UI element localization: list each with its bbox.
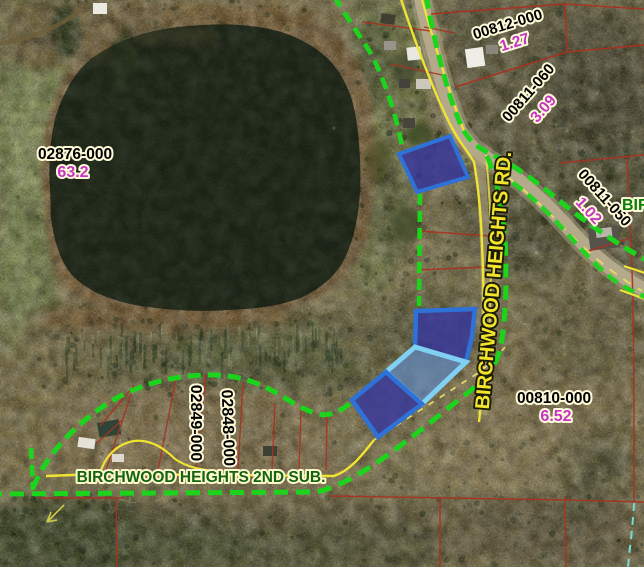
svg-text:02876-000: 02876-000 xyxy=(38,146,112,163)
svg-text:63.2: 63.2 xyxy=(57,164,88,181)
svg-text:00810-000: 00810-000 xyxy=(517,390,591,407)
svg-text:02849-000: 02849-000 xyxy=(187,385,204,462)
svg-text:BIRC: BIRC xyxy=(622,197,644,214)
svg-text:02848-000: 02848-000 xyxy=(218,389,238,466)
svg-text:6.52: 6.52 xyxy=(540,408,571,425)
svg-text:BIRCHWOOD HEIGHTS 2ND SUB.: BIRCHWOOD HEIGHTS 2ND SUB. xyxy=(77,469,326,486)
